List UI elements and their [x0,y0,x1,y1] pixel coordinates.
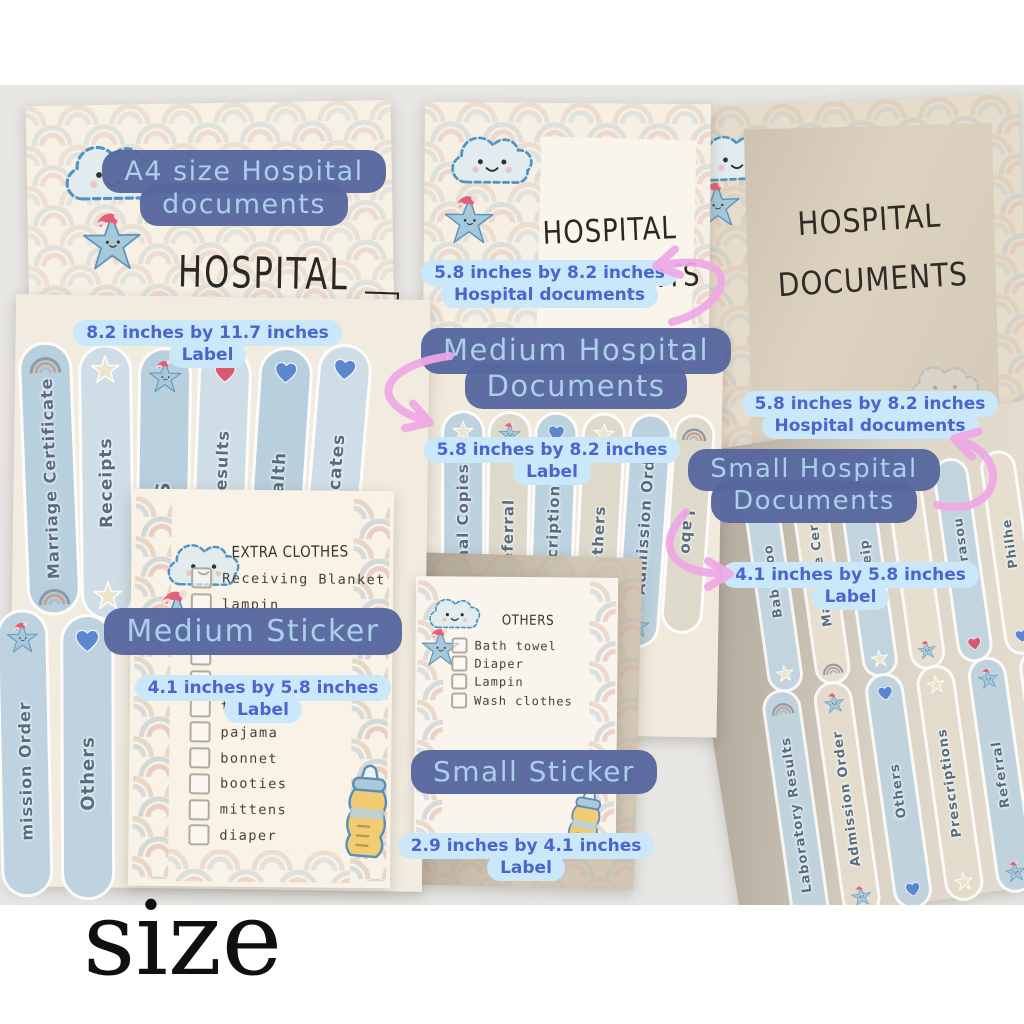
rainbow-icon [821,658,845,676]
heart-icon [964,633,984,653]
rainbow-icon [769,698,795,717]
heart-icon [901,878,924,901]
badge-a4-size: 8.2 inches by 11.7 inches Label [100,320,315,368]
size-caption: size [83,880,282,999]
star-with-hat-icon [1002,858,1024,884]
star-icon [953,871,974,892]
label-text: mission Order [14,701,36,841]
baby-bottle-icon [331,761,395,872]
badge-medium-sticker-size: 4.1 inches by 5.8 inches Label [162,675,364,723]
label-strip: Others [866,674,931,905]
label-strip: Others [63,617,112,897]
star-with-hat-icon [821,690,846,716]
star-icon [869,648,889,668]
badge-small-sticker-size: 2.9 inches by 4.1 inches Label [420,833,632,881]
product-photo-canvas: HOSPITAL HOSPITAL DOCUMENTS Name of Moth… [0,0,1024,1024]
annotation-a4-documents: A4 size Hospital documents [118,150,370,226]
label-strip: Receipts [81,347,132,618]
badge-small-doc-size: 5.8 inches by 8.2 inches Hospital docume… [765,391,975,439]
heart-icon [329,353,361,385]
star-with-hat-icon [5,619,40,656]
heart-icon [874,682,897,705]
label-strip: Philhe [981,452,1024,654]
annotation-small-sticker: Small Sticker [426,750,642,794]
others-card: OTHERS Bath towel Diaper Lampin Wash clo… [414,576,618,842]
label-text: Marriage Certificate [36,378,63,580]
heart-icon [71,624,103,656]
others-checklist: Bath towel Diaper Lampin Wash clothes [451,636,573,710]
extra-clothes-title: EXTRA CLOTHES [231,543,348,562]
small-doc-title: HOSPITAL DOCUMENTS [754,184,989,317]
label-text: Admission Order [830,730,864,868]
label-text: Labo [677,510,698,556]
star-icon [925,674,946,695]
annotation-medium-sticker: Medium Sticker [128,608,378,655]
label-text: Others [887,763,910,820]
heart-icon [1012,626,1024,646]
badge-small-label-size: 4.1 inches by 5.8 inches Label [748,562,953,610]
label-text: Philhe [998,518,1020,570]
label-text: Receipts [96,437,117,528]
label-strip: mission Order [0,612,51,895]
rainbow-icon [681,423,708,442]
annotation-medium-documents: Medium Hospital Documents [447,328,705,409]
star-with-hat-icon [848,883,873,905]
label-strip: Ultrasou [934,459,992,661]
label-strip: Prescriptions [917,666,982,900]
label-text: Laboratory Results [779,736,816,894]
label-text: Others [77,736,98,811]
badge-medium-label-size: 5.8 inches by 8.2 inches Label [452,437,652,485]
label-strip: Admission Order [815,682,880,905]
label-text: Referral [989,740,1013,809]
medium-document-sheet: HOSPITAL DOCUMENTS [423,102,711,354]
label-text: Prescriptions [935,727,965,838]
star-with-hat-icon [975,665,1000,691]
annotation-small-documents: Small Hospital Documents [705,449,923,523]
a4-doc-title: HOSPITAL [168,246,359,301]
star-character [442,190,497,248]
star-with-hat-icon [915,638,938,662]
label-strip: Marriage Certificate [20,344,78,614]
star-icon [775,663,795,683]
rainbow-icon [28,351,63,374]
rainbow-icon [37,583,72,606]
others-title: OTHERS [502,612,554,629]
star-icon [93,580,123,610]
cloud-character [439,120,542,197]
label-strip: Laboratory Results [763,690,828,905]
badge-medium-doc-size: 5.8 inches by 8.2 inches Hospital docume… [432,260,667,308]
